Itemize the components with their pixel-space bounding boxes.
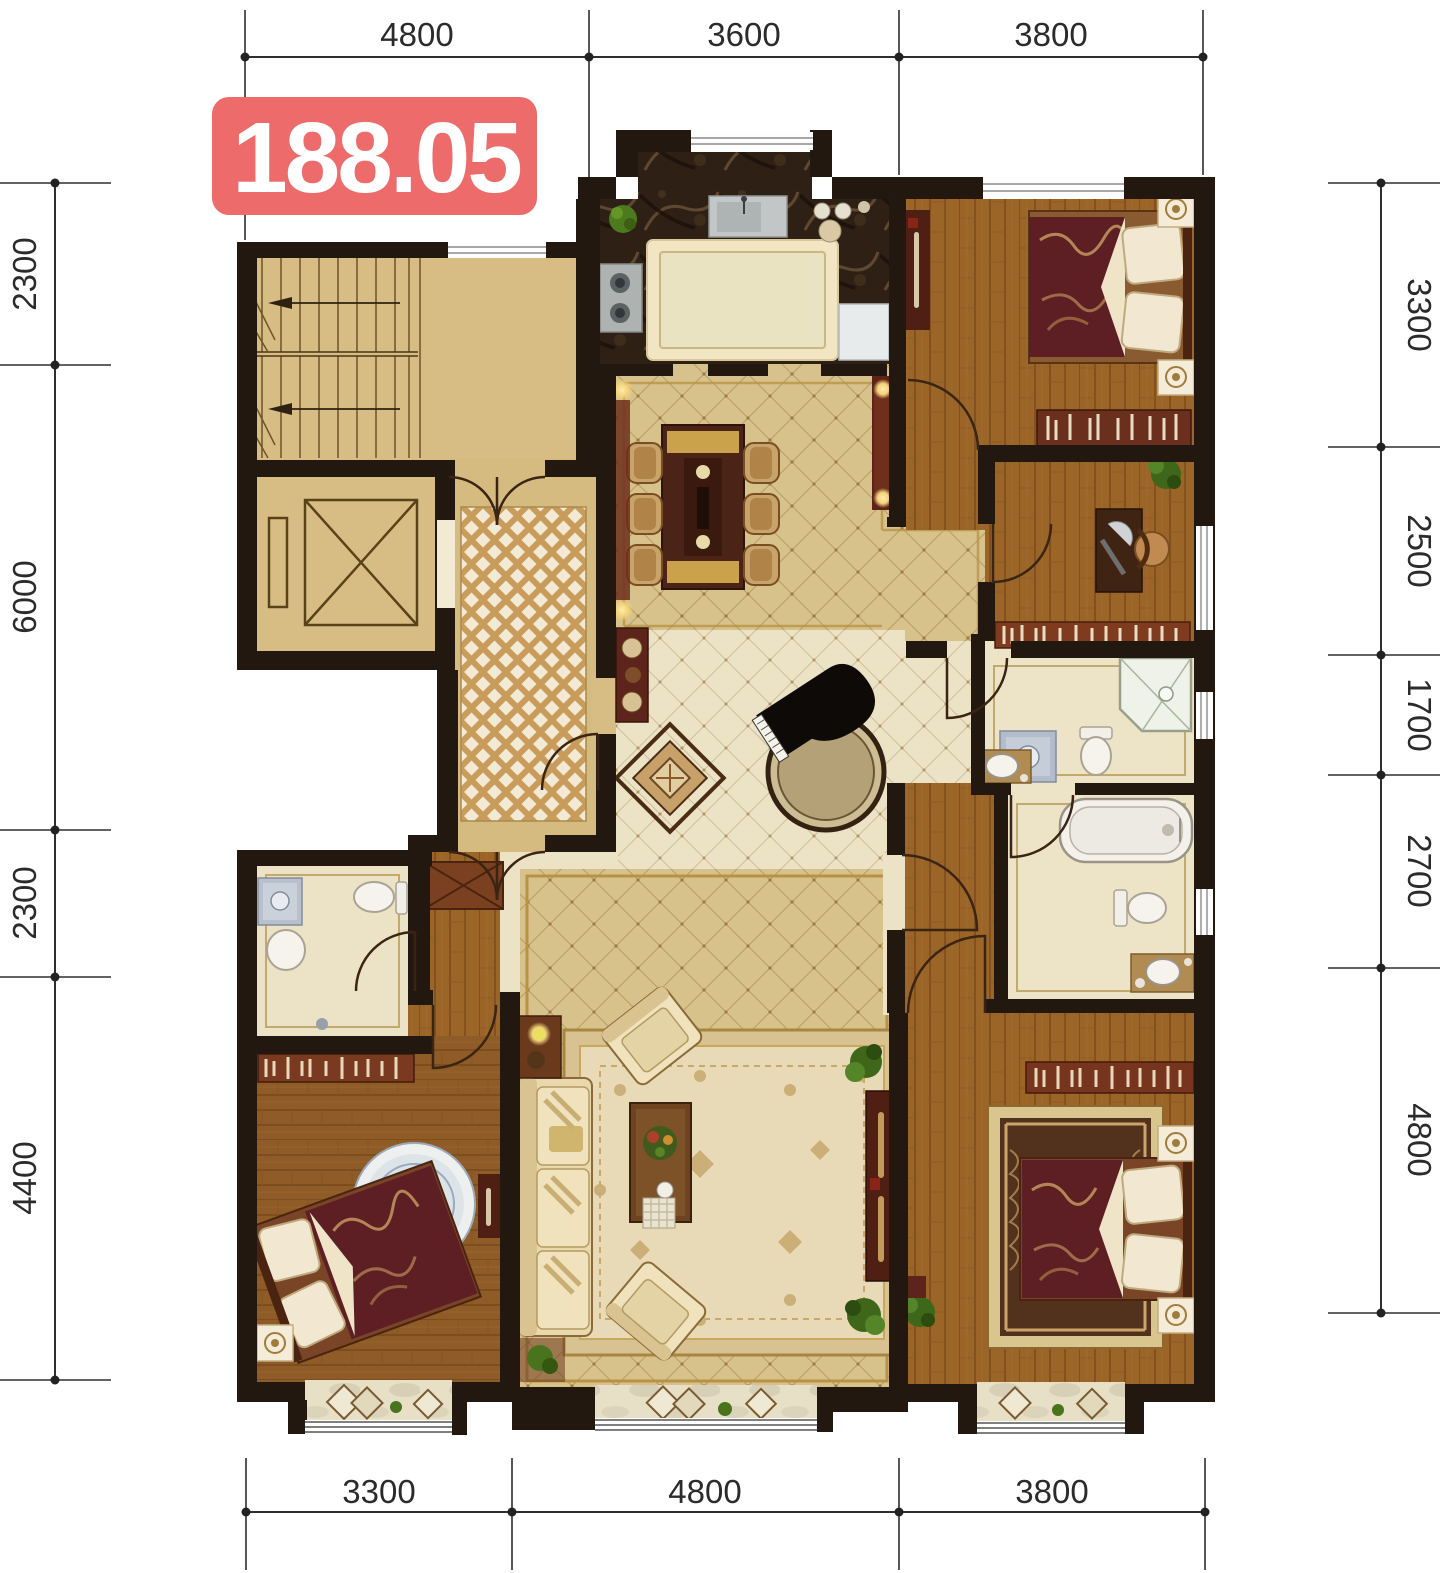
svg-text:2700: 2700 xyxy=(1401,834,1438,907)
svg-text:4400: 4400 xyxy=(6,1141,43,1214)
svg-text:6000: 6000 xyxy=(6,560,43,633)
svg-text:4800: 4800 xyxy=(668,1473,741,1510)
svg-text:4800: 4800 xyxy=(380,16,453,53)
svg-text:2300: 2300 xyxy=(6,237,43,310)
svg-text:3300: 3300 xyxy=(342,1473,415,1510)
svg-text:3800: 3800 xyxy=(1015,1473,1088,1510)
svg-text:3800: 3800 xyxy=(1014,16,1087,53)
svg-text:2300: 2300 xyxy=(6,866,43,939)
svg-text:2500: 2500 xyxy=(1401,514,1438,587)
svg-text:4800: 4800 xyxy=(1401,1103,1438,1176)
svg-text:1700: 1700 xyxy=(1401,678,1438,751)
svg-text:3300: 3300 xyxy=(1401,278,1438,351)
svg-text:188.05: 188.05 xyxy=(232,102,520,214)
svg-text:3600: 3600 xyxy=(707,16,780,53)
